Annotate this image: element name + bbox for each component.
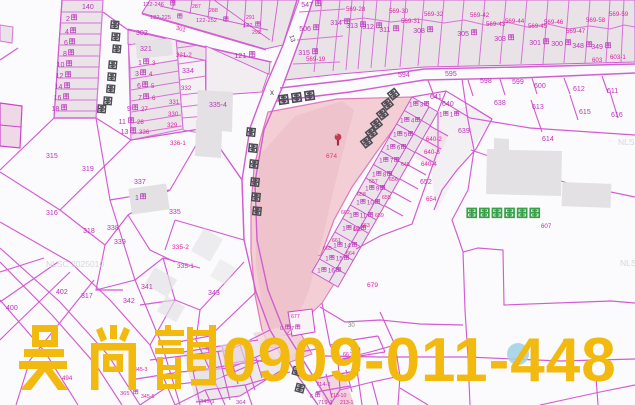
svg-text:569-47: 569-47 [566, 28, 586, 35]
svg-text:4: 4 [149, 71, 153, 78]
svg-text:122-225: 122-225 [150, 15, 171, 21]
svg-text:1: 1 [349, 213, 353, 220]
svg-text:1: 1 [409, 102, 413, 109]
svg-text:345-1: 345-1 [200, 399, 215, 405]
svg-text:506: 506 [299, 26, 311, 33]
svg-text:1: 1 [450, 112, 454, 119]
svg-text:640-3: 640-3 [424, 149, 440, 156]
svg-text:336: 336 [139, 129, 150, 136]
svg-text:8: 8 [383, 172, 387, 179]
svg-text:599: 599 [512, 79, 524, 86]
svg-text:569-44: 569-44 [505, 18, 525, 25]
svg-text:18: 18 [52, 106, 60, 113]
svg-text:NLS: NLS [618, 137, 635, 147]
svg-text:8: 8 [63, 51, 67, 58]
svg-text:x: x [270, 88, 274, 97]
svg-text:638: 638 [494, 100, 506, 107]
svg-text:5: 5 [404, 132, 408, 139]
svg-text:321: 321 [140, 46, 152, 53]
svg-text:679: 679 [367, 282, 378, 289]
svg-text:14: 14 [55, 84, 63, 91]
svg-text:7: 7 [390, 158, 394, 165]
svg-text:345-3: 345-3 [134, 367, 148, 373]
svg-text:1: 1 [379, 158, 383, 165]
svg-text:0909-011-448: 0909-011-448 [222, 326, 617, 395]
svg-text:10: 10 [367, 200, 374, 207]
svg-text:600: 600 [534, 83, 546, 90]
svg-text:7: 7 [138, 95, 142, 102]
svg-text:569-43: 569-43 [486, 21, 506, 28]
svg-text:659: 659 [375, 213, 384, 219]
svg-text:319: 319 [82, 166, 94, 173]
svg-text:213-1: 213-1 [340, 400, 354, 405]
svg-text:655: 655 [382, 195, 391, 201]
svg-text:664: 664 [346, 251, 355, 257]
svg-text:338: 338 [107, 225, 119, 232]
svg-text:1: 1 [372, 172, 376, 179]
svg-text:1: 1 [325, 256, 329, 263]
svg-text:348: 348 [572, 43, 584, 50]
svg-text:2: 2 [66, 16, 70, 23]
svg-text:6: 6 [137, 83, 141, 90]
svg-text:400: 400 [6, 305, 18, 312]
svg-text:1: 1 [386, 145, 390, 152]
svg-text:16: 16 [54, 95, 62, 102]
svg-text:335-2: 335-2 [172, 244, 189, 251]
svg-text:3: 3 [420, 102, 424, 109]
svg-text:339: 339 [114, 239, 126, 246]
svg-text:305: 305 [457, 31, 469, 38]
svg-text:14: 14 [344, 243, 351, 250]
svg-text:6: 6 [64, 40, 68, 47]
svg-text:335-4: 335-4 [209, 102, 227, 109]
svg-text:121: 121 [234, 51, 246, 60]
svg-text:321-2: 321-2 [176, 52, 192, 59]
svg-text:317: 317 [81, 293, 93, 300]
svg-text:10: 10 [57, 62, 65, 69]
svg-text:616: 616 [611, 112, 623, 119]
svg-text:318: 318 [83, 228, 95, 235]
svg-text:303: 303 [494, 36, 506, 43]
svg-text:595: 595 [445, 71, 457, 78]
svg-text:569-32: 569-32 [424, 11, 444, 18]
svg-text:302: 302 [136, 30, 148, 37]
svg-text:335: 335 [169, 209, 181, 216]
svg-text:611: 611 [607, 88, 618, 95]
svg-text:640: 640 [442, 101, 454, 108]
svg-text:292: 292 [252, 30, 261, 36]
svg-text:615: 615 [579, 109, 591, 116]
svg-text:640-4: 640-4 [421, 161, 437, 168]
svg-text:494: 494 [62, 375, 73, 382]
svg-text:569-59: 569-59 [609, 11, 629, 18]
svg-text:312: 312 [362, 24, 374, 31]
svg-text:662: 662 [341, 210, 350, 216]
svg-text:342: 342 [123, 298, 135, 305]
svg-text:291: 291 [246, 15, 255, 21]
svg-text:1: 1 [317, 268, 321, 275]
svg-text:4: 4 [411, 118, 415, 125]
svg-text:657: 657 [369, 179, 378, 185]
svg-text:334: 334 [182, 68, 194, 75]
svg-text:329: 329 [167, 122, 178, 129]
svg-text:641: 641 [430, 94, 442, 101]
svg-text:349: 349 [591, 44, 603, 51]
svg-text:337: 337 [134, 179, 146, 186]
svg-text:11: 11 [119, 119, 126, 126]
svg-text:674: 674 [326, 153, 337, 160]
svg-text:311: 311 [379, 27, 390, 34]
svg-text:603: 603 [592, 57, 603, 64]
svg-text:308: 308 [413, 28, 425, 35]
svg-text:6: 6 [152, 95, 156, 102]
svg-text:402: 402 [56, 289, 68, 296]
svg-text:314: 314 [330, 20, 342, 27]
svg-text:13: 13 [121, 129, 129, 136]
svg-text:330: 330 [168, 111, 179, 118]
svg-text:9: 9 [376, 186, 380, 193]
svg-text:3: 3 [152, 60, 156, 67]
svg-text:569-28: 569-28 [346, 6, 366, 13]
svg-text:335-1: 335-1 [177, 263, 194, 270]
svg-text:640-2: 640-2 [426, 136, 442, 143]
svg-text:12: 12 [56, 73, 64, 80]
svg-text:654: 654 [426, 196, 437, 203]
svg-text:287: 287 [192, 4, 201, 10]
svg-text:332: 332 [181, 85, 192, 92]
svg-text:719-1: 719-1 [318, 400, 333, 405]
svg-text:603-1: 603-1 [610, 54, 626, 61]
svg-text:569-19: 569-19 [306, 56, 326, 63]
svg-text:341: 341 [141, 284, 153, 291]
svg-text:569-42: 569-42 [470, 12, 490, 19]
svg-text:598: 598 [480, 78, 492, 85]
svg-text:661: 661 [332, 238, 341, 244]
svg-text:316: 316 [46, 210, 58, 217]
svg-text:28: 28 [137, 119, 144, 126]
svg-text:3: 3 [135, 71, 139, 78]
svg-text:345-6: 345-6 [141, 394, 155, 400]
svg-text:658: 658 [357, 192, 366, 198]
svg-text:1: 1 [342, 226, 346, 233]
svg-text:612: 612 [573, 86, 585, 93]
svg-text:639: 639 [458, 128, 470, 135]
svg-text:301: 301 [529, 40, 541, 47]
svg-text:313: 313 [346, 23, 358, 30]
svg-text:343: 343 [208, 290, 220, 297]
svg-text:648: 648 [401, 162, 410, 168]
svg-text:4: 4 [65, 29, 69, 36]
svg-text:613: 613 [532, 104, 544, 111]
svg-text:547: 547 [301, 2, 313, 9]
svg-text:1: 1 [356, 200, 360, 207]
svg-text:9: 9 [127, 106, 131, 113]
svg-text:15: 15 [336, 256, 343, 263]
svg-text:1: 1 [135, 195, 139, 202]
svg-text:1: 1 [439, 112, 443, 119]
svg-text:665: 665 [323, 246, 332, 252]
svg-text:5: 5 [151, 83, 155, 90]
svg-text:607: 607 [541, 223, 552, 230]
svg-text:140: 140 [82, 4, 94, 11]
svg-text:569-30: 569-30 [389, 8, 409, 15]
svg-text:11: 11 [360, 213, 367, 220]
svg-text:594: 594 [398, 72, 410, 79]
svg-text:1: 1 [138, 60, 142, 67]
svg-text:336-1: 336-1 [170, 140, 186, 147]
svg-text:122-246: 122-246 [143, 2, 164, 8]
svg-text:1: 1 [393, 132, 397, 139]
svg-text:122-252: 122-252 [196, 18, 217, 24]
svg-text:300: 300 [551, 41, 563, 48]
svg-text:614: 614 [542, 136, 554, 143]
svg-text:569-31: 569-31 [401, 18, 421, 25]
svg-text:NLSC 2025010: NLSC 2025010 [46, 259, 104, 269]
svg-text:27: 27 [141, 106, 148, 113]
svg-text:656: 656 [389, 177, 398, 183]
svg-text:331: 331 [169, 99, 180, 106]
svg-text:569-58: 569-58 [586, 17, 606, 24]
svg-text:122: 122 [243, 23, 253, 29]
svg-text:288: 288 [209, 8, 218, 14]
svg-text:315: 315 [46, 153, 58, 160]
svg-text:652: 652 [420, 179, 432, 186]
svg-text:NLS: NLS [620, 258, 635, 268]
svg-text:663: 663 [361, 223, 370, 229]
svg-text:677: 677 [291, 314, 300, 320]
svg-text:365: 365 [120, 391, 130, 397]
svg-text:6: 6 [397, 145, 401, 152]
svg-text:1: 1 [400, 118, 404, 125]
svg-text:364: 364 [236, 400, 246, 405]
svg-text:16: 16 [328, 268, 335, 275]
svg-text:569-46: 569-46 [544, 19, 564, 26]
